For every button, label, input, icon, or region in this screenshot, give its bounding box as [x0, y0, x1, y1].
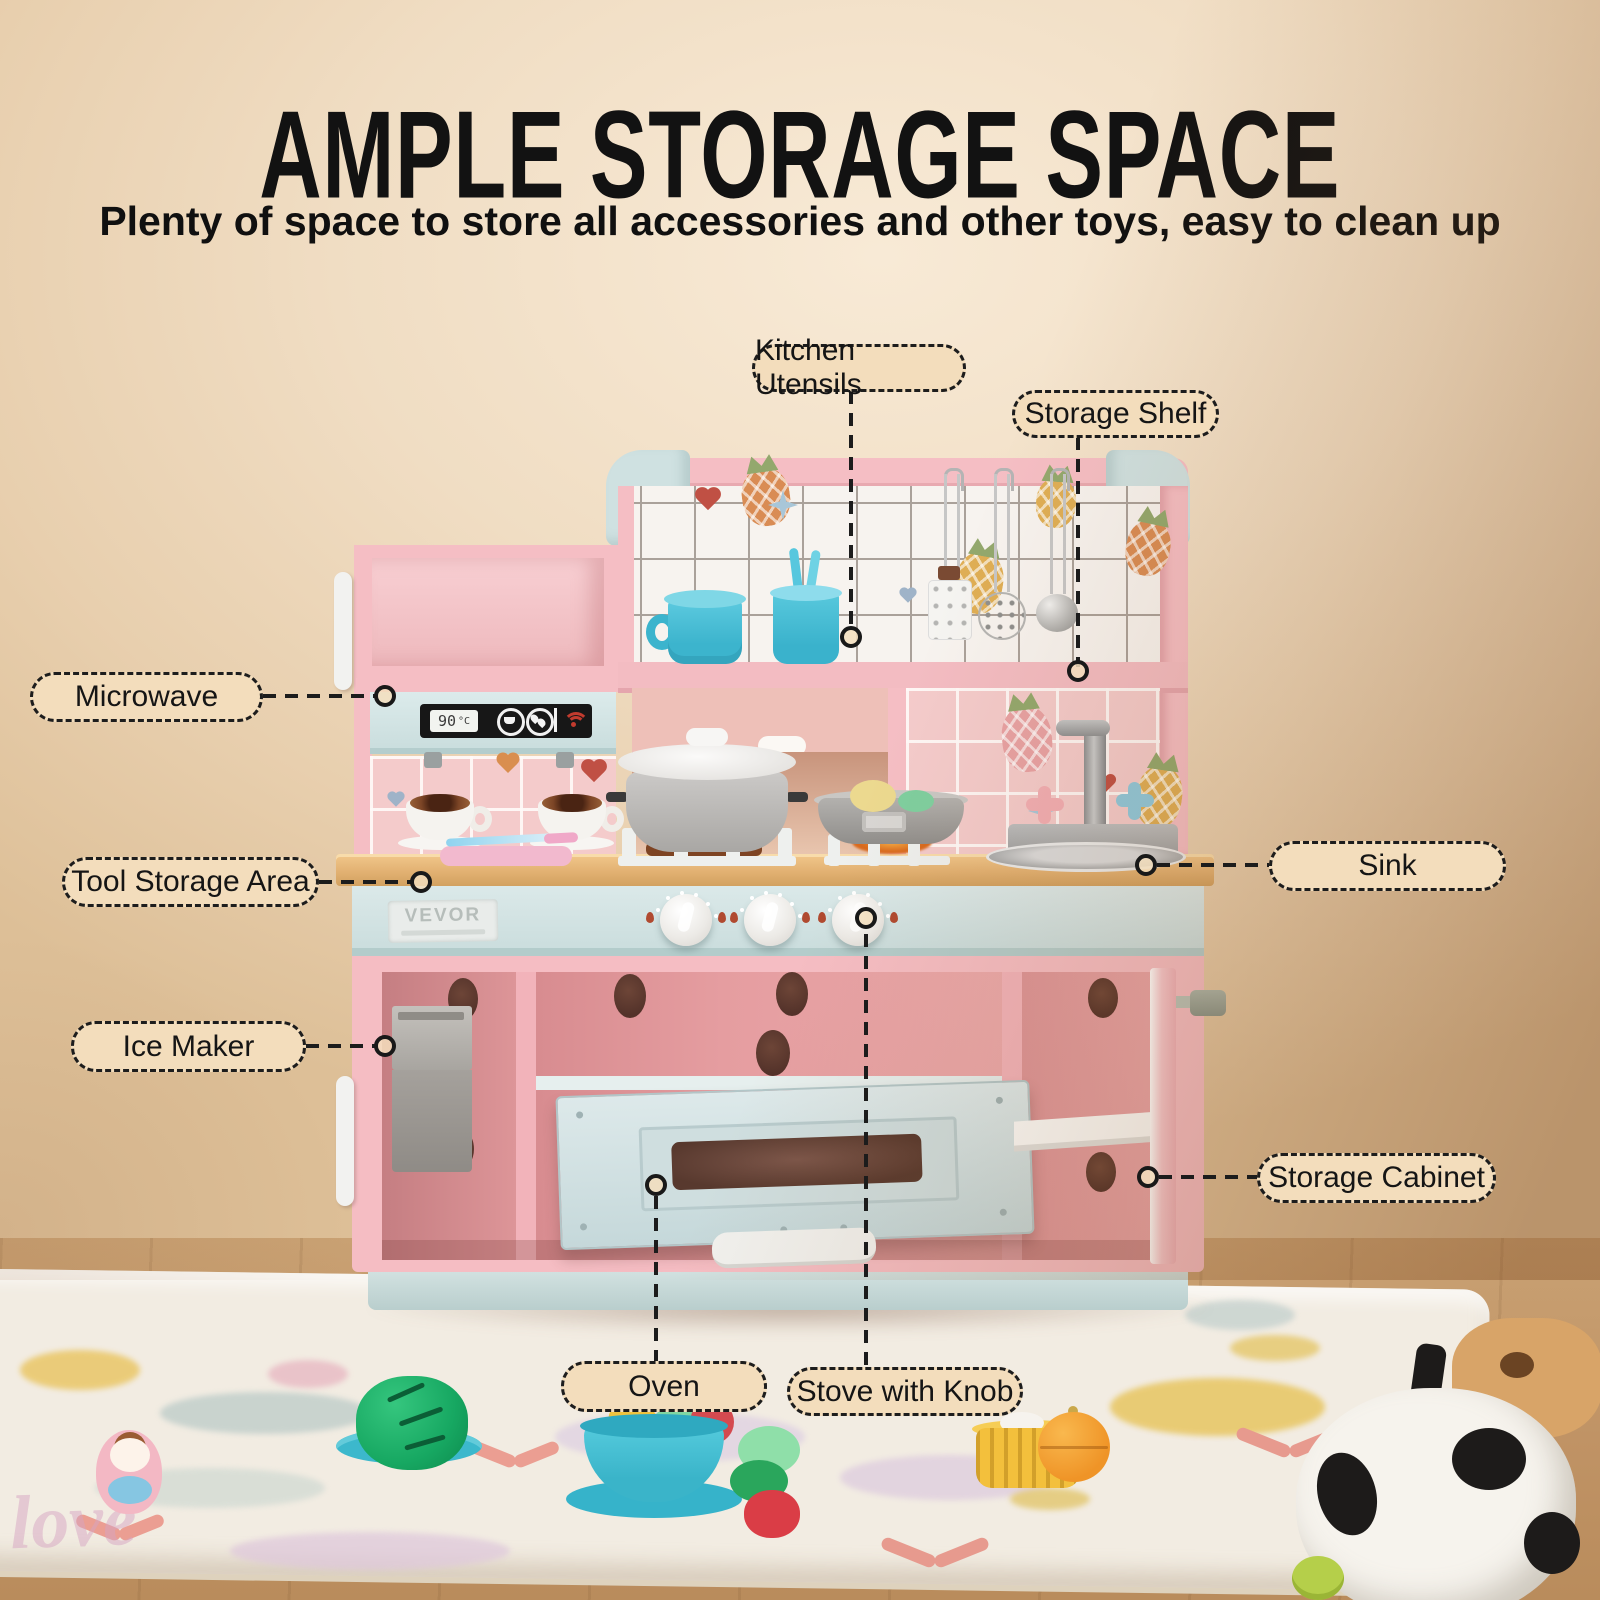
cup-hook: [556, 752, 574, 768]
callout-microwave: Microwave: [30, 672, 263, 722]
ladle-handle: [1050, 474, 1066, 594]
vent-hole: [1088, 978, 1118, 1018]
tap-knob-pink-v: [1038, 786, 1051, 824]
callout-kitchen-utensils: Kitchen Utensils: [752, 344, 966, 392]
callout-label: Sink: [1358, 849, 1416, 883]
strawberry-berry: [744, 1490, 800, 1538]
vent-hole: [614, 974, 646, 1018]
tap-knob-blue-v: [1128, 782, 1141, 820]
open-door-edge: [1150, 968, 1176, 1264]
oven-door: [555, 1080, 1034, 1250]
hutch-shelf-board: [618, 662, 1188, 688]
callout-label: Storage Cabinet: [1268, 1161, 1485, 1195]
toy-grater-body: [928, 580, 972, 640]
callout-label: Storage Shelf: [1025, 397, 1207, 431]
plush-panda-patch: [1524, 1512, 1580, 1574]
callout-dot-oven: [645, 1174, 667, 1196]
door-handle-knob-cap: [1190, 990, 1226, 1016]
burner-stand-base: [618, 856, 796, 866]
upper-cabinet-interior: [372, 558, 604, 666]
coffee-decal-coffee: [542, 794, 602, 812]
wifi-icon-inner: [567, 716, 585, 734]
coffee-decal-coffee: [410, 794, 470, 812]
callout-dot-stove: [855, 907, 877, 929]
cup-hook: [424, 752, 442, 768]
wifi-icon-dot: [571, 722, 576, 727]
callout-line-tool-storage: [319, 880, 412, 884]
toy-mug-rim: [664, 590, 746, 608]
cabinet-divider: [516, 972, 536, 1260]
callout-label: Tool Storage Area: [71, 865, 310, 899]
stove-knob: [660, 894, 712, 946]
rug-chevron: [470, 1442, 560, 1472]
plush-tan-spot: [1500, 1352, 1534, 1378]
coffee-mode-icon-cup: [504, 717, 515, 724]
callout-label: Kitchen Utensils: [755, 334, 963, 402]
callout-line-storage-shelf: [1076, 437, 1080, 667]
callout-label: Stove with Knob: [797, 1375, 1014, 1409]
callout-oven: Oven: [561, 1361, 767, 1412]
toy-green-food: [898, 790, 934, 812]
faucet-column: [1084, 726, 1106, 830]
flame-mark: [802, 912, 810, 923]
grater-handle: [944, 474, 960, 578]
ice-maker-slot: [398, 1012, 464, 1020]
flame-mark: [730, 912, 738, 923]
callout-label: Ice Maker: [123, 1030, 255, 1064]
callout-dot-storage-cabinet: [1137, 1166, 1159, 1188]
rug-chevron: [880, 1540, 990, 1570]
toy-grater: [938, 566, 960, 580]
page-subtitle: Plenty of space to store all accessories…: [0, 198, 1600, 245]
toy-tumbler: [773, 592, 839, 664]
callout-stove-with-knob: Stove with Knob: [787, 1367, 1023, 1416]
toy-ladle: [1036, 594, 1078, 632]
product-feature-graphic: love AMPLE STORAGE SPACE Plenty of space…: [0, 0, 1600, 1600]
pot-lid: [618, 744, 796, 780]
microwave-temp: 90: [438, 712, 456, 730]
green-disc-toy: [1292, 1556, 1344, 1600]
rug-cloud: [230, 1532, 510, 1570]
skimmer-handle: [994, 474, 1010, 592]
stove-knob: [744, 894, 796, 946]
toy-bowl-rim: [580, 1414, 728, 1438]
toy-egg: [850, 780, 896, 812]
callout-line-sink: [1157, 863, 1269, 867]
plush-panda-patch: [1452, 1428, 1526, 1490]
control-divider: [554, 708, 557, 732]
flame-mark: [718, 912, 726, 923]
callout-dot-kitchen-utensils: [840, 626, 862, 648]
callout-ice-maker: Ice Maker: [71, 1021, 306, 1072]
brand-text: VEVOR: [388, 904, 498, 928]
flame-mark: [818, 912, 826, 923]
callout-sink: Sink: [1269, 841, 1506, 891]
callout-storage-cabinet: Storage Cabinet: [1257, 1153, 1496, 1203]
oven-handle: [711, 1227, 876, 1269]
toy-orange-seam: [1040, 1446, 1108, 1449]
rug-cloud: [1230, 1335, 1320, 1361]
callout-line-kitchen-utensils: [849, 391, 853, 633]
brand-plate: VEVOR: [388, 899, 499, 943]
hutch-top-rail: [618, 458, 1188, 488]
matryoshka-tummy: [108, 1476, 152, 1504]
callout-label: Oven: [628, 1370, 700, 1404]
flame-mark: [890, 912, 898, 923]
callout-line-storage-cabinet: [1159, 1175, 1257, 1179]
vent-hole: [756, 1030, 790, 1076]
callout-line-microwave: [263, 694, 375, 698]
vent-hole: [776, 972, 808, 1016]
pot-handle: [786, 792, 808, 802]
callout-dot-tool-storage: [410, 871, 432, 893]
rug-cloud: [1110, 1378, 1325, 1436]
ice-maker-body: [392, 1070, 472, 1172]
oven-window-cutout: [671, 1134, 923, 1191]
cutting-board: [440, 846, 572, 866]
callout-dot-microwave: [374, 685, 396, 707]
rug-cloud: [268, 1360, 348, 1388]
rug-cloud: [1010, 1488, 1090, 1510]
tower-shelf-board: [356, 678, 618, 692]
callout-label: Microwave: [75, 680, 218, 714]
lower-door-handle: [336, 1076, 354, 1206]
matryoshka-face: [110, 1438, 150, 1472]
callout-tool-storage-area: Tool Storage Area: [62, 857, 319, 907]
oven-screw: [576, 1111, 583, 1118]
callout-line-oven: [654, 1196, 658, 1361]
callout-line-ice-maker: [306, 1044, 376, 1048]
vent-hole: [1086, 1152, 1116, 1192]
rug-cloud: [160, 1392, 370, 1434]
pan-handle: [862, 812, 906, 832]
toy-tumbler-rim: [770, 585, 842, 601]
pot-lid-knob: [686, 728, 728, 746]
hutch-left-frame: [618, 486, 634, 688]
rug-cloud: [20, 1350, 140, 1390]
microwave-display: 90°C: [430, 710, 478, 732]
faucet-spout: [1056, 720, 1110, 736]
callout-dot-storage-shelf: [1067, 660, 1089, 682]
callout-storage-shelf: Storage Shelf: [1012, 390, 1219, 438]
upper-door-handle: [334, 572, 352, 690]
callout-dot-ice-maker: [374, 1035, 396, 1057]
toy-skimmer: [978, 592, 1026, 640]
flame-mark: [646, 912, 654, 923]
callout-line-stove: [864, 934, 868, 1367]
burner-stand-base: [824, 856, 950, 865]
pot-handle: [606, 792, 628, 802]
toy-knife-handle: [544, 832, 578, 844]
kitchen-base-plinth: [368, 1272, 1188, 1310]
callout-dot-sink: [1135, 854, 1157, 876]
pot-body: [626, 772, 788, 852]
brand-subtext-line: [401, 929, 485, 935]
microwave-unit: °C: [458, 716, 470, 727]
